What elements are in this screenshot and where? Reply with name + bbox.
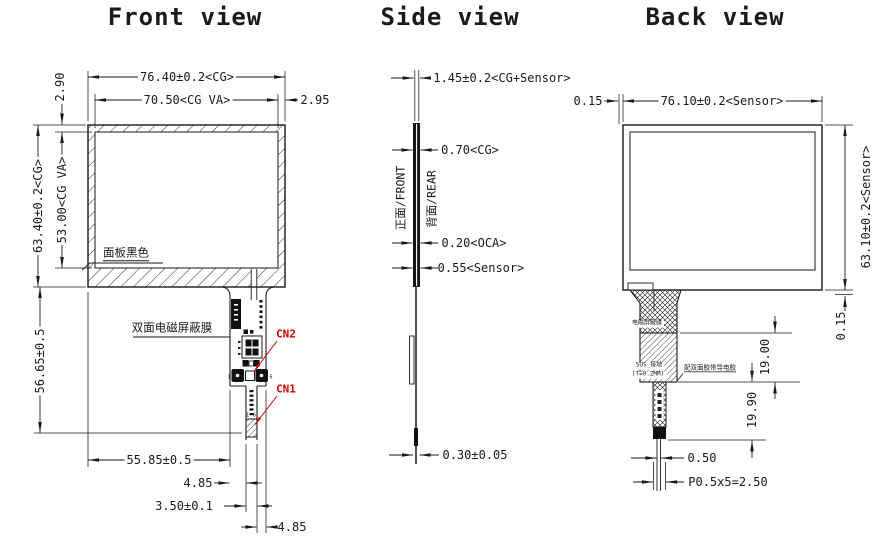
front-dim-fpc-width: 3.50±0.1 (155, 500, 213, 512)
front-dim-height-va: 53.00<CG VA> (56, 155, 68, 246)
fpc-finger-pads (250, 390, 254, 415)
front-dim-tail-margin-left: 4.85 (184, 477, 213, 489)
back-sensor-outline (623, 125, 822, 290)
touch-ic-chip (242, 336, 262, 358)
back-view-title: Back view (645, 5, 784, 29)
side-dim-fpc-thickness: 0.30±0.05 (442, 449, 507, 461)
back-label-sus-ground: SUS_接地 (634, 363, 664, 370)
side-extension-lines (415, 70, 419, 121)
side-connector-end (414, 428, 418, 446)
front-dim-width-va: 70.50<CG VA> (142, 94, 233, 106)
front-label-cn2: CN2 (276, 329, 296, 340)
back-dim-height-sensor: 63.10±0.2<Sensor> (860, 144, 872, 271)
back-label-sus-thickness: (T=0.2MM) (630, 372, 667, 379)
back-connector-end (653, 427, 666, 439)
back-label-shield-film: 电磁屏蔽膜 (630, 321, 664, 328)
front-tail-components (231, 299, 268, 437)
front-dim-bezel-right: 2.95 (301, 94, 330, 106)
back-label-conductive-adhesive: 配双面胶带导电胶 (684, 364, 736, 372)
back-dim-fpc-end-width: 0.50 (688, 452, 717, 464)
front-view-title: Front view (108, 5, 263, 29)
front-dim-bezel-top: 2.90 (54, 73, 66, 102)
front-label-panel-black: 面板黑色 (103, 247, 149, 261)
back-adhesive-leader (678, 374, 684, 381)
side-dim-total-thickness: 1.45±0.2<CG+Sensor> (433, 72, 570, 84)
front-dim-tail-length: 56.65±0.5 (34, 326, 46, 395)
back-view-drawing (604, 94, 853, 491)
cn2-connector (232, 369, 269, 382)
back-dim-offset-bottom: 0.15 (835, 312, 847, 341)
front-dim-tail-margin-right: 4.85 (278, 521, 307, 533)
side-stiffener (410, 336, 415, 384)
cn2-pin6-label: 6 (269, 376, 272, 381)
front-dim-width-cg: 76.40±0.2<CG> (138, 71, 236, 83)
front-dim-height-cg: 63.40±0.2<CG> (32, 157, 44, 255)
back-dim-width-sensor: 76.10±0.2<Sensor> (659, 95, 786, 107)
side-label-front-face: 正面/FRONT (395, 166, 407, 231)
side-view-drawing (389, 70, 439, 464)
back-dim-offset-left: 0.15 (574, 95, 603, 107)
front-label-cn1: CN1 (276, 384, 296, 395)
side-dim-cg-thickness: 0.70<CG> (441, 144, 499, 156)
side-view-title: Side view (380, 5, 519, 29)
cn1-pin1-label: 1 (246, 414, 249, 419)
side-label-rear-face: 背面/REAR (426, 170, 438, 228)
cn1-contact-area (246, 419, 257, 437)
back-active-area-outline (630, 132, 815, 270)
back-dim-tail-length: 19.90 (746, 390, 758, 430)
technical-drawing-page: Front view Side view Back view 76.40±0.2… (0, 0, 877, 548)
side-dim-sensor-thickness: 0.55<Sensor> (438, 262, 525, 274)
back-dim-pitch: P0.5x5=2.50 (688, 476, 767, 488)
side-dim-oca-thickness: 0.20<OCA> (441, 237, 506, 249)
front-dim-tail-offset: 55.85±0.5 (124, 454, 193, 466)
back-fpc-end-lines (657, 439, 661, 491)
cn2-pin1-label: 1 (227, 376, 230, 381)
back-dim-shield-length: 19.00 (759, 339, 771, 375)
front-label-shield-film: 双面电磁屏蔽膜 (132, 322, 213, 334)
pad-column (260, 300, 263, 329)
back-bonding-area (628, 283, 653, 290)
cn1-pin6-label: 6 (253, 414, 256, 419)
